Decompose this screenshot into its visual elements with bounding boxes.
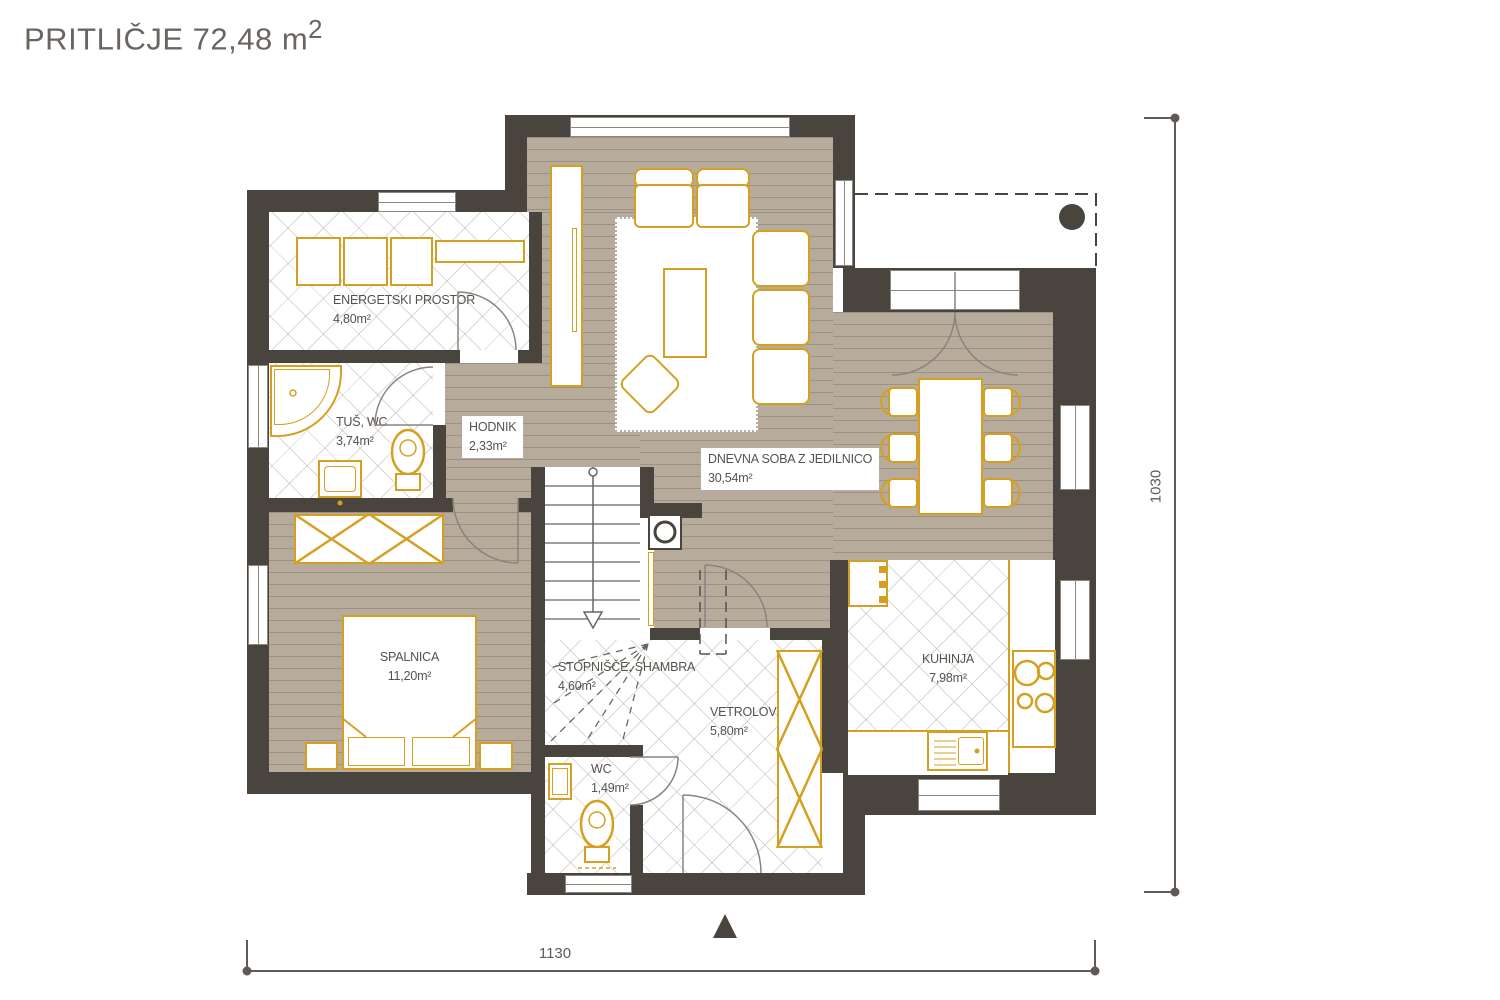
room-name: DNEVNA SOBA Z JEDILNICO <box>708 450 872 469</box>
nightstand-left <box>305 742 338 770</box>
wall-spalnica-north <box>268 498 453 512</box>
sofa-chaise-3 <box>752 348 810 405</box>
chair-left-3 <box>888 478 918 508</box>
wall-energetski-south <box>268 350 460 363</box>
room-area: 11,20m² <box>342 667 477 686</box>
room-area: 5,80m² <box>710 722 776 741</box>
appliance-1 <box>296 237 341 286</box>
kitchen-sink-basin <box>958 737 984 765</box>
page-title: PRITLIČJE 72,48 m2 <box>24 16 323 57</box>
room-area: 4,60m² <box>558 677 695 696</box>
wc-sink-basin <box>552 768 568 795</box>
room-label-stopnisce: STOPNIŠČE, SHAMBRA 4,60m² <box>558 658 695 696</box>
chair-left-1 <box>888 387 918 417</box>
room-area: 2,33m² <box>469 437 516 456</box>
page-title-sup: 2 <box>308 16 323 44</box>
chair-right-3 <box>983 478 1013 508</box>
wall-kitchen-west-stub <box>830 560 848 640</box>
wall-tus-east <box>433 425 446 498</box>
room-area: 4,80m² <box>333 310 475 329</box>
energetski-counter <box>435 240 525 263</box>
cabinet-handle <box>572 228 577 332</box>
room-area: 3,74m² <box>336 432 387 451</box>
chimney <box>648 514 682 550</box>
wall-bottom-left <box>247 772 531 794</box>
terrace-column <box>1059 204 1085 230</box>
room-name: TUŠ, WC <box>336 413 387 432</box>
room-name: KUHINJA <box>898 650 998 669</box>
chair-right-2 <box>983 433 1013 463</box>
window-wc-south <box>565 875 632 893</box>
room-label-kuhinja: KUHINJA 7,98m² <box>898 650 998 688</box>
room-name: STOPNIŠČE, SHAMBRA <box>558 658 695 677</box>
room-name: WC <box>591 760 629 779</box>
chair-right-1 <box>983 387 1013 417</box>
window-living-east <box>835 180 853 266</box>
wall-living-vetrolov-a <box>650 628 700 640</box>
room-label-dnevna: DNEVNA SOBA Z JEDILNICO 30,54m² <box>701 448 879 490</box>
pillow-left <box>348 737 405 766</box>
wall-right <box>1053 268 1096 815</box>
kitchen-hob-dot-3 <box>879 596 886 603</box>
floor-stairs-upper <box>545 467 640 640</box>
wall-vetrolov-east <box>822 640 848 773</box>
window-dining-east <box>1060 405 1090 490</box>
appliance-2 <box>343 237 388 286</box>
nightstand-right <box>479 742 513 770</box>
window-living-north <box>570 117 790 137</box>
window-kitchen-south <box>918 779 1000 811</box>
kitchen-hob-dot-1 <box>879 566 886 573</box>
window-tus-west <box>248 365 268 448</box>
wall-wc-north <box>545 745 643 757</box>
room-area: 7,98m² <box>898 669 998 688</box>
room-name: VETROLOV <box>710 703 776 722</box>
sofa-chaise-1 <box>752 230 810 287</box>
stove <box>1012 650 1056 748</box>
wall-left <box>247 190 269 794</box>
wardrobe-vetrolov <box>777 650 822 848</box>
room-label-vetrolov: VETROLOV 5,80m² <box>710 703 776 741</box>
floorplan-page: { "title": { "text": "PRITLIČJE 72,48 m"… <box>0 0 1500 1000</box>
room-label-tus: TUŠ, WC 3,74m² <box>336 413 387 451</box>
tall-cabinet <box>550 165 583 387</box>
kitchen-hob-dot-2 <box>879 581 886 588</box>
sofa-seat-left <box>634 184 694 228</box>
sofa-chaise-2 <box>752 289 810 346</box>
room-area: 30,54m² <box>708 469 872 488</box>
entrance-arrow <box>713 914 737 938</box>
coffee-table <box>663 268 707 358</box>
wall-wc-east <box>630 805 643 873</box>
wall-top-left <box>247 190 505 212</box>
window-energetski-north <box>378 192 456 212</box>
wall-stair-west <box>531 467 545 895</box>
chair-left-2 <box>888 433 918 463</box>
terrace-outline <box>855 194 1096 268</box>
room-area: 1,49m² <box>591 779 629 798</box>
window-spalnica-west <box>248 565 268 645</box>
wall-energetski-east <box>529 212 542 363</box>
wall-living-vetrolov-b <box>770 628 830 640</box>
dining-table <box>918 378 983 515</box>
wall-spalnica-north-stub <box>518 498 531 512</box>
room-name: SPALNICA <box>342 648 477 667</box>
french-door-dining[interactable] <box>890 270 1020 310</box>
wardrobe-spalnica <box>294 514 444 564</box>
room-label-energetski: ENERGETSKI PROSTOR 4,80m² <box>333 291 475 329</box>
room-name: ENERGETSKI PROSTOR <box>333 291 475 310</box>
page-title-text: PRITLIČJE 72,48 m <box>24 21 308 56</box>
room-label-hodnik: HODNIK 2,33m² <box>462 416 523 458</box>
dimension-height-label: 1030 <box>1148 449 1165 525</box>
dimension-width-label: 1130 <box>520 945 590 962</box>
window-kitchen-east <box>1060 580 1090 660</box>
appliance-3 <box>390 237 433 286</box>
wall-stair-east <box>640 467 654 503</box>
vanity-basin <box>324 466 356 492</box>
sofa-seat-right <box>696 184 750 228</box>
room-label-wc: WC 1,49m² <box>591 760 629 798</box>
tv-sideboard <box>648 552 654 626</box>
room-name: HODNIK <box>469 418 516 437</box>
room-label-spalnica: SPALNICA 11,20m² <box>342 648 477 686</box>
pillow-right <box>412 737 470 766</box>
